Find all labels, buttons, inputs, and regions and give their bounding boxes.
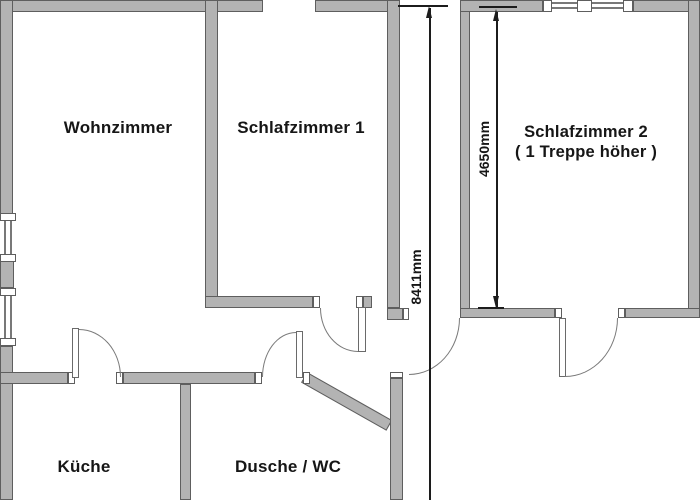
door-dusche-swing-arc (262, 332, 296, 377)
jamb-door4-right (618, 308, 625, 318)
window-frame-cap (543, 0, 552, 12)
room-label-kueche: Küche (58, 457, 111, 477)
dim-s2-arrow-down (493, 296, 499, 308)
jamb-door4-left (555, 308, 562, 318)
wall-top-west (0, 0, 263, 12)
dim-total-label: 8411mm (408, 249, 424, 304)
door-flur-swing-arc (320, 308, 358, 352)
door-flur-leaf (358, 307, 366, 352)
wall-exterior-left-lower (0, 346, 13, 500)
window-glazing (4, 221, 12, 254)
wall-corridor-connector (387, 308, 403, 320)
wall-wohnzimmer-schlafzimmer1 (205, 0, 218, 308)
window-frame-cap (0, 254, 16, 262)
dim-total-top-tick (398, 5, 448, 7)
window-mullion (577, 0, 592, 12)
window-glazing (592, 2, 623, 9)
door-kueche-swing-arc (79, 329, 121, 377)
dim-s2-label: 4650mm (476, 121, 492, 177)
jamb-door2-left (255, 372, 262, 384)
wall-mid-west (0, 372, 68, 384)
room-label-dusche-wc: Dusche / WC (235, 457, 341, 477)
door-kueche-leaf (72, 328, 79, 378)
dim-total-line (429, 8, 431, 500)
wall-schlafzimmer2-south-west (460, 308, 555, 318)
door-dusche-leaf (296, 331, 303, 378)
room-label-schlafzimmer2: Schlafzimmer 2 ( 1 Treppe höher ) (515, 122, 657, 162)
wall-exterior-left-upper (0, 0, 13, 214)
jamb-door3-left (313, 296, 320, 308)
wall-schlafzimmer2-south-east (625, 308, 700, 318)
jamb-lower-east-wall-top (390, 372, 403, 378)
dim-s2-top-tick (479, 6, 517, 8)
room-label-wohnzimmer: Wohnzimmer (64, 118, 172, 138)
wall-dusche-diagonal (301, 372, 392, 431)
dim-s2-bottom-tick (478, 307, 504, 309)
floor-plan: 8411mm 4650mm Wohnzimmer Schlafzimmer 1 … (0, 0, 700, 500)
dim-s2-arrow-up (493, 9, 499, 21)
window-frame-cap (623, 0, 633, 12)
wall-window-pier (0, 261, 14, 288)
window-frame-cap (0, 338, 16, 346)
wall-right-unit-west (460, 0, 470, 318)
wall-kueche-dusche (180, 384, 191, 500)
room-label-schlafzimmer1: Schlafzimmer 1 (237, 118, 365, 138)
dim-total-arrow-up (426, 6, 432, 18)
wall-left-unit-east-lower (390, 378, 403, 500)
wall-right-unit-east (688, 0, 700, 318)
wall-left-unit-east-upper (387, 0, 400, 308)
wall-schlafzimmer1-south (205, 296, 313, 308)
jamb-door2-right (303, 372, 310, 384)
door-corridor-swing-arc (409, 318, 460, 375)
wall-mid-center (123, 372, 255, 384)
window-frame-cap (0, 288, 16, 296)
dim-s2-line (496, 12, 498, 308)
room-label-schlafzimmer2-line2: ( 1 Treppe höher ) (515, 142, 657, 162)
door-schlafzimmer2-swing-arc (565, 318, 618, 377)
window-glazing (552, 2, 577, 9)
window-glazing (4, 296, 12, 338)
window-frame-cap (0, 213, 16, 221)
room-label-schlafzimmer2-line1: Schlafzimmer 2 (515, 122, 657, 142)
